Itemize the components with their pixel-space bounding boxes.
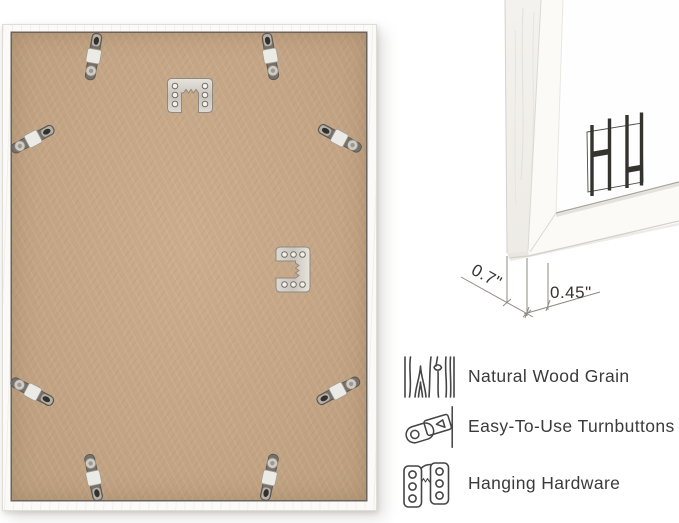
feature-turnbuttons: Easy-To-Use Turnbuttons bbox=[402, 403, 675, 451]
hanging-hardware-icon bbox=[402, 457, 450, 511]
depth-dimension-label: 0.7" bbox=[468, 260, 505, 292]
sawtooth-hanger-side-icon bbox=[276, 247, 311, 293]
feature-label-wood-grain: Natural Wood Grain bbox=[468, 368, 630, 386]
corner-detail-view: 0.7" 0.45" bbox=[390, 0, 679, 320]
feature-label-turnbuttons: Easy-To-Use Turnbuttons bbox=[468, 418, 675, 436]
feature-label-hanging-hardware: Hanging Hardware bbox=[468, 475, 620, 493]
mat-area bbox=[556, 0, 679, 212]
wood-grain-icon bbox=[402, 355, 456, 399]
face-dimension-label: 0.45" bbox=[550, 283, 592, 302]
sawtooth-hanger-icon bbox=[167, 78, 213, 113]
feature-wood-grain: Natural Wood Grain bbox=[402, 354, 630, 400]
turnbutton-icon bbox=[402, 404, 458, 450]
feature-hanging-hardware: Hanging Hardware bbox=[402, 457, 620, 511]
product-infographic: 0.7" 0.45" Natural bbox=[0, 0, 679, 523]
